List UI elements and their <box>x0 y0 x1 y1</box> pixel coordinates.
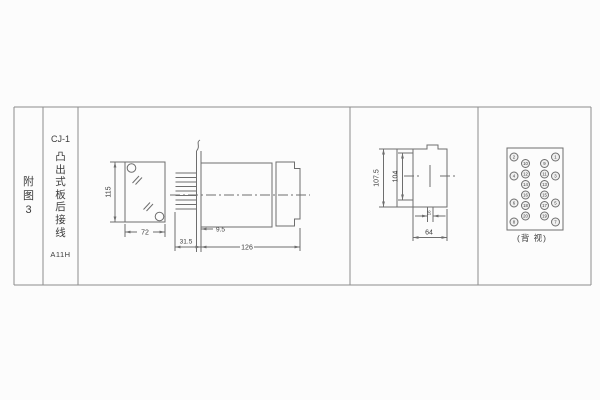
terminal-number: 20 <box>523 214 528 219</box>
terminal-number: 14 <box>523 182 528 187</box>
mount-type-label: 凸出式板后接线 <box>54 151 67 239</box>
terminal-pin-comb <box>176 173 197 209</box>
rear-terminals: 2468101214161820911131517191357 <box>510 153 560 226</box>
panel-break-line <box>197 140 201 151</box>
mounting-panel-section <box>197 140 202 252</box>
rear-view-caption: (背 视) <box>517 233 547 243</box>
dim-label-16: 16 <box>426 210 431 216</box>
glass-hatch-marks <box>133 176 154 211</box>
doc-code-label: A11H <box>43 250 78 259</box>
dim-label-72: 72 <box>141 230 149 237</box>
model-cell: CJ-1 凸出式板后接线 A11H <box>43 107 78 285</box>
dim-label-115: 115 <box>106 186 113 197</box>
front-view: 115 72 <box>106 162 166 237</box>
terminal-number: 17 <box>542 203 547 208</box>
rear-view: 2468101214161820911131517191357 (背 视) <box>507 148 563 243</box>
terminal-number: 16 <box>523 193 528 198</box>
center-mark <box>404 165 456 187</box>
dim-front-width: 72 <box>125 224 165 237</box>
dim-pin-section: 31.5 <box>175 212 201 251</box>
dim-label-64: 64 <box>425 230 433 237</box>
seal-screw-top <box>127 164 136 173</box>
terminal-number: 12 <box>523 172 528 177</box>
model-label: CJ-1 <box>43 134 78 144</box>
figure-number-label: 附图3 <box>22 175 36 218</box>
dim-label-104: 104 <box>393 171 400 183</box>
dim-label-31-5: 31.5 <box>180 239 193 246</box>
panel-cutout-view: 107.5 104 16 <box>374 145 457 241</box>
dim-stud-pitch: 16 <box>415 210 446 218</box>
table-grid <box>14 107 591 285</box>
dim-front-height: 115 <box>106 162 126 222</box>
seal-screw-bottom <box>155 212 164 221</box>
terminal-number: 11 <box>542 172 547 177</box>
terminal-number: 10 <box>523 161 528 166</box>
technical-drawing: 115 72 <box>0 0 600 400</box>
terminal-number: 19 <box>542 214 547 219</box>
terminal-number: 18 <box>523 203 528 208</box>
drawing-sheet: 115 72 <box>0 0 600 400</box>
dim-label-126: 126 <box>241 245 253 252</box>
figure-number-cell: 附图3 <box>14 107 43 285</box>
dim-label-107-5: 107.5 <box>374 169 381 187</box>
terminal-number: 13 <box>542 182 547 187</box>
socket-block <box>276 162 300 226</box>
side-view: 9.5 31.5 126 <box>170 140 310 252</box>
terminal-number: 15 <box>542 193 547 198</box>
front-case-outline <box>125 162 165 222</box>
dim-panel-offset: 9.5 <box>201 227 225 234</box>
dim-label-9-5: 9.5 <box>216 227 225 234</box>
